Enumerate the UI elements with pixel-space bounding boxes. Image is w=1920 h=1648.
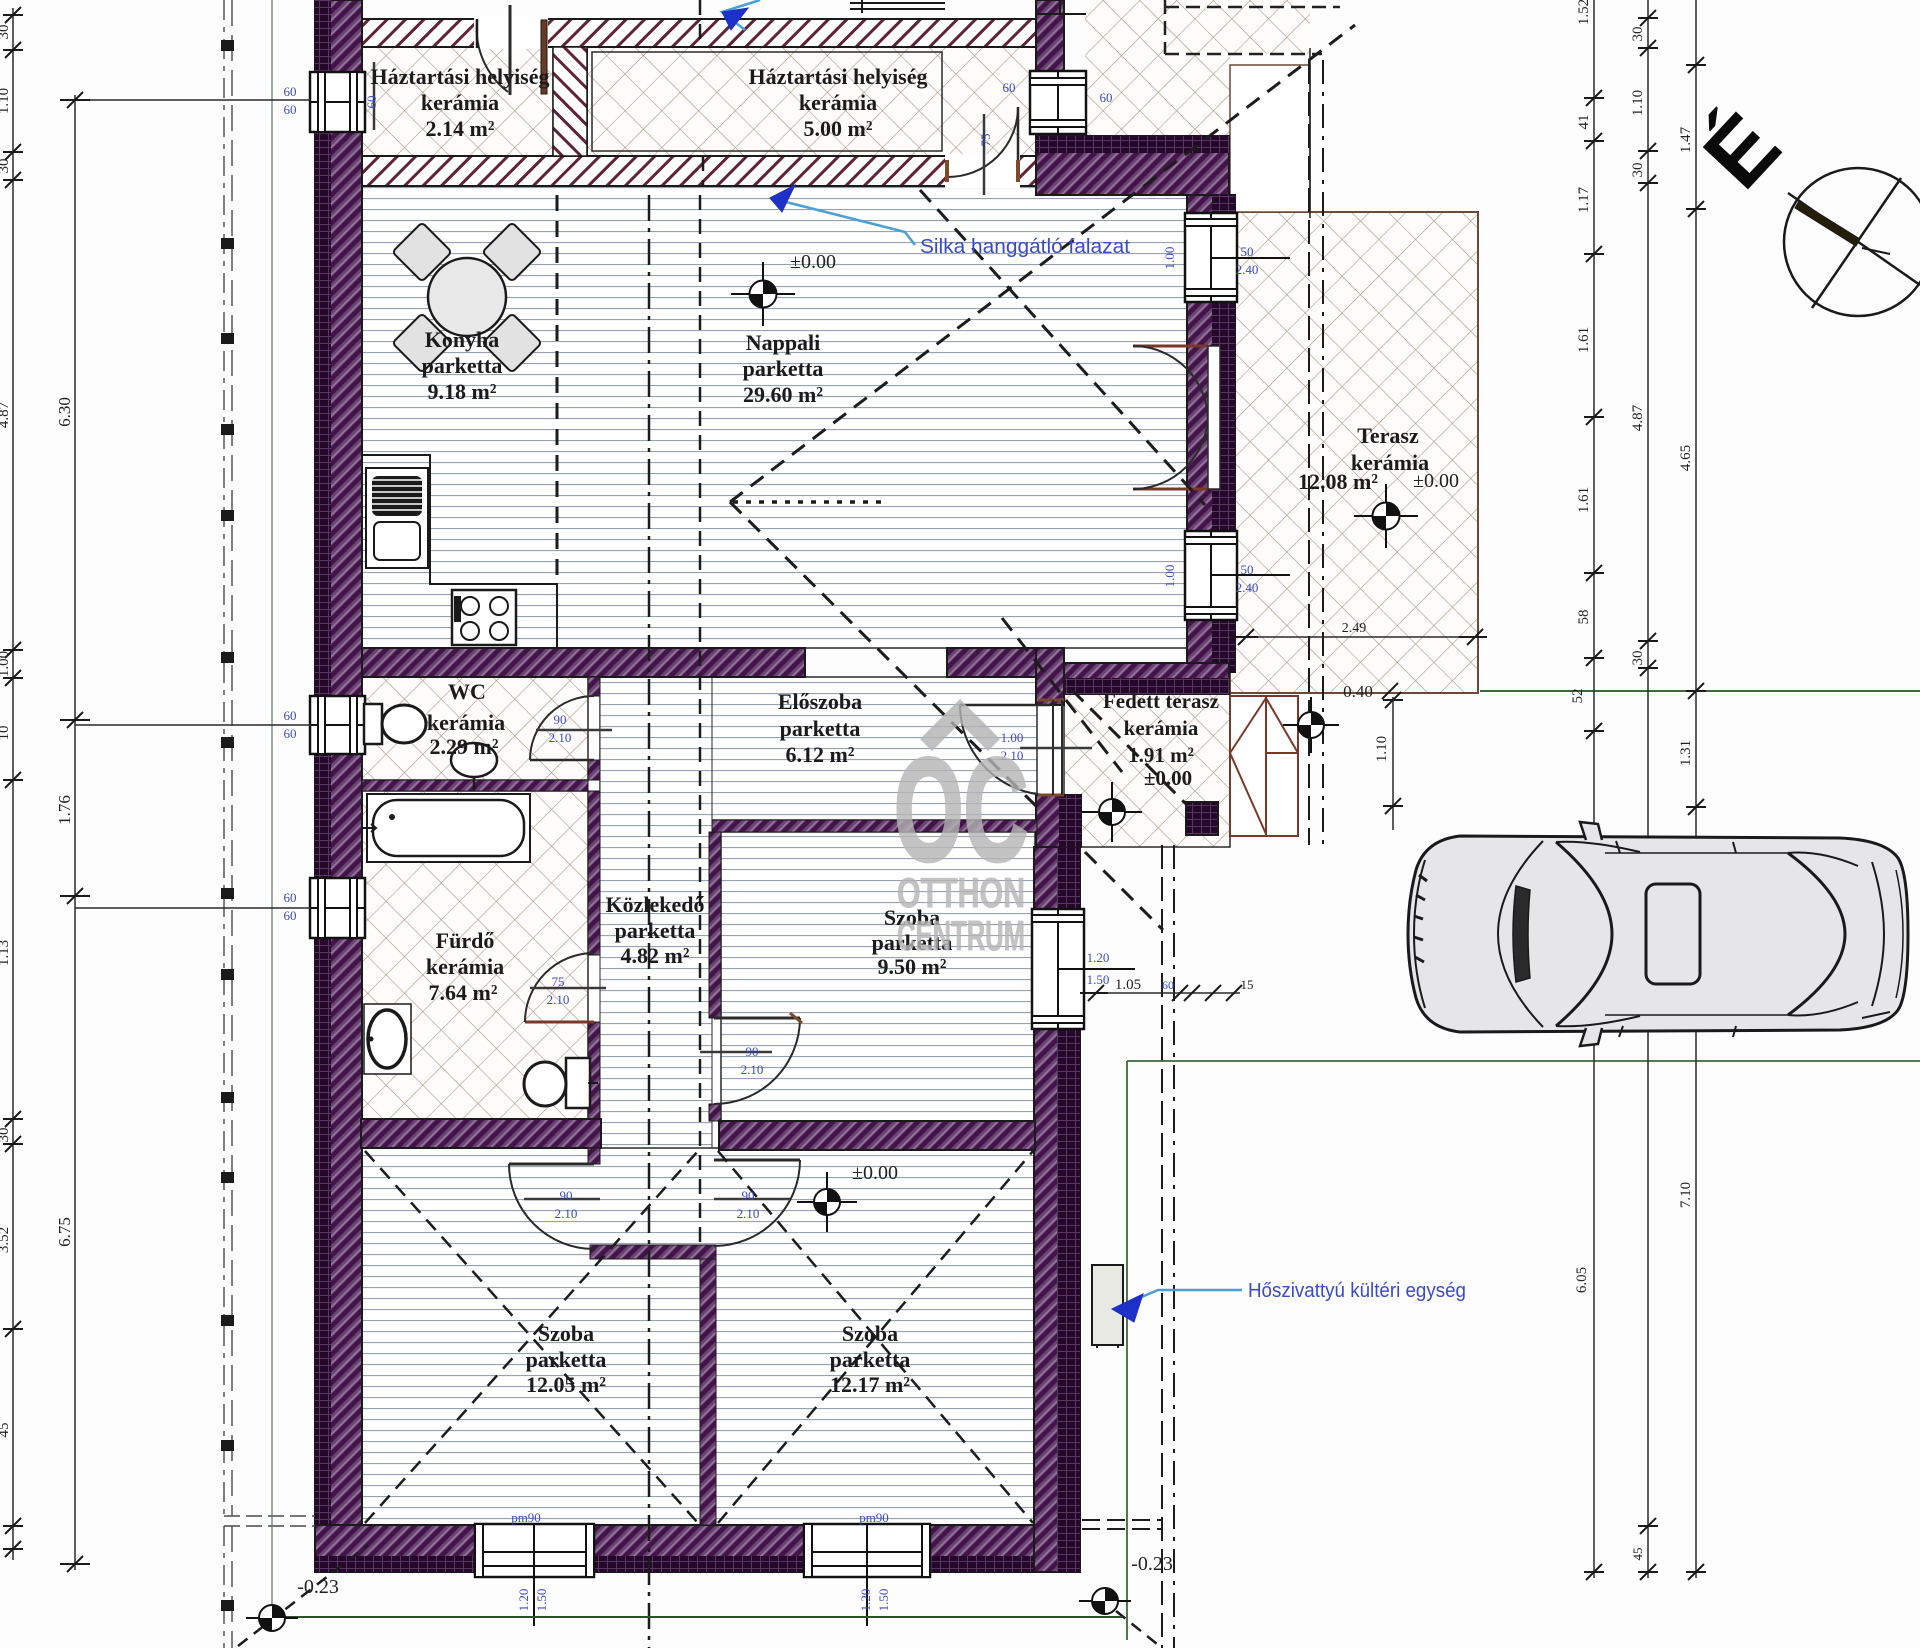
svg-text:2.14 m²: 2.14 m² xyxy=(426,116,495,141)
svg-text:10: 10 xyxy=(0,726,12,741)
svg-text:15: 15 xyxy=(1241,977,1254,992)
svg-text:parketta: parketta xyxy=(780,716,861,741)
svg-text:kerámia: kerámia xyxy=(427,710,505,735)
svg-text:60: 60 xyxy=(284,102,297,117)
svg-text:2.10: 2.10 xyxy=(741,1062,764,1077)
svg-text:Szoba: Szoba xyxy=(538,1321,594,1346)
svg-text:Nappali: Nappali xyxy=(746,330,821,355)
svg-text:1.50: 1.50 xyxy=(876,1589,891,1612)
svg-text:Fedett terasz: Fedett terasz xyxy=(1103,689,1219,713)
svg-text:±0.00: ±0.00 xyxy=(790,251,836,273)
svg-text:kerámia: kerámia xyxy=(799,90,877,115)
svg-text:2.49: 2.49 xyxy=(1342,621,1367,636)
svg-text:Silka hanggátló falazat: Silka hanggátló falazat xyxy=(920,236,1130,258)
svg-text:2.10: 2.10 xyxy=(737,1206,760,1221)
svg-text:Konyha: Konyha xyxy=(425,327,500,352)
svg-text:4.87: 4.87 xyxy=(0,401,12,428)
svg-text:1.20: 1.20 xyxy=(516,1589,531,1612)
svg-text:kerámia: kerámia xyxy=(426,954,504,979)
svg-text:1.50: 1.50 xyxy=(1087,972,1110,987)
svg-text:30: 30 xyxy=(0,1128,12,1143)
svg-text:-0.23: -0.23 xyxy=(297,1576,339,1598)
svg-text:45: 45 xyxy=(0,1423,12,1438)
svg-text:1.61: 1.61 xyxy=(1576,327,1592,353)
svg-text:parketta: parketta xyxy=(615,918,696,943)
svg-text:OTTHON: OTTHON xyxy=(897,869,1025,916)
svg-text:1.17: 1.17 xyxy=(1576,186,1592,213)
svg-text:90: 90 xyxy=(554,712,567,727)
svg-text:75: 75 xyxy=(978,134,993,147)
svg-text:pm90: pm90 xyxy=(859,1510,889,1525)
svg-text:60: 60 xyxy=(1100,90,1113,105)
svg-text:4.82 m²: 4.82 m² xyxy=(621,943,690,968)
svg-text:parketta: parketta xyxy=(743,356,824,381)
svg-text:-0.23: -0.23 xyxy=(1131,1553,1173,1575)
svg-text:2.40: 2.40 xyxy=(1236,262,1259,277)
svg-text:60: 60 xyxy=(284,708,297,723)
svg-text:2.10: 2.10 xyxy=(555,1206,578,1221)
svg-text:1.52: 1.52 xyxy=(1576,0,1592,25)
svg-text:12.17 m²: 12.17 m² xyxy=(830,1372,910,1397)
svg-text:parketta: parketta xyxy=(830,1347,911,1372)
svg-text:75: 75 xyxy=(552,974,565,989)
svg-text:3.52: 3.52 xyxy=(0,1227,12,1253)
svg-text:kerámia: kerámia xyxy=(421,90,499,115)
svg-text:1.00: 1.00 xyxy=(1162,565,1177,588)
svg-text:2.10: 2.10 xyxy=(547,992,570,1007)
svg-text:6.12 m²: 6.12 m² xyxy=(786,742,855,767)
svg-text:1.20: 1.20 xyxy=(858,1589,873,1612)
svg-text:2.40: 2.40 xyxy=(1236,580,1259,595)
svg-text:Előszoba: Előszoba xyxy=(778,689,862,714)
svg-text:OC: OC xyxy=(894,728,1028,891)
svg-text:1.91 m²: 1.91 m² xyxy=(1128,743,1194,767)
svg-text:parketta: parketta xyxy=(526,1347,607,1372)
svg-text:CENTRUM: CENTRUM xyxy=(897,912,1025,959)
svg-text:pm90: pm90 xyxy=(511,1510,541,1525)
svg-text:60: 60 xyxy=(284,726,297,741)
svg-text:Háztartási helyiség: Háztartási helyiség xyxy=(370,64,549,89)
svg-text:60: 60 xyxy=(1003,80,1016,95)
svg-text:90: 90 xyxy=(742,1188,755,1203)
svg-text:2.10: 2.10 xyxy=(549,730,572,745)
svg-text:30: 30 xyxy=(1630,651,1646,666)
svg-text:60: 60 xyxy=(284,84,297,99)
svg-text:1.61: 1.61 xyxy=(1576,487,1592,513)
svg-text:4.65: 4.65 xyxy=(1678,445,1694,471)
svg-text:30: 30 xyxy=(1630,163,1646,178)
svg-text:5.00 m²: 5.00 m² xyxy=(804,116,873,141)
svg-text:60: 60 xyxy=(1162,978,1174,992)
svg-text:50: 50 xyxy=(1241,562,1254,577)
svg-text:90: 90 xyxy=(560,1188,573,1203)
svg-text:12.05 m²: 12.05 m² xyxy=(526,1372,606,1397)
svg-text:6.30: 6.30 xyxy=(55,397,74,427)
svg-text:1.05: 1.05 xyxy=(1115,977,1141,993)
svg-text:30: 30 xyxy=(0,159,12,174)
svg-text:parketta: parketta xyxy=(422,353,503,378)
svg-text:60: 60 xyxy=(284,890,297,905)
svg-text:1.10: 1.10 xyxy=(1630,90,1646,116)
svg-text:1.76: 1.76 xyxy=(55,795,74,825)
svg-text:6.05: 6.05 xyxy=(1574,1267,1590,1293)
svg-text:60: 60 xyxy=(284,908,297,923)
svg-text:1.10: 1.10 xyxy=(1374,736,1390,762)
svg-text:1.00: 1.00 xyxy=(0,651,12,677)
svg-text:4.87: 4.87 xyxy=(1630,404,1646,431)
svg-text:41: 41 xyxy=(1576,115,1592,130)
svg-text:6.75: 6.75 xyxy=(55,1217,74,1247)
svg-text:Terasz: Terasz xyxy=(1357,423,1419,448)
svg-text:kerámia: kerámia xyxy=(1124,716,1199,740)
svg-text:Szoba: Szoba xyxy=(842,1321,898,1346)
svg-text:45: 45 xyxy=(1630,1548,1645,1561)
svg-text:Háztartási helyiség: Háztartási helyiség xyxy=(748,64,927,89)
svg-text:2.29 m²: 2.29 m² xyxy=(430,734,499,759)
svg-text:30: 30 xyxy=(0,25,12,40)
svg-text:58: 58 xyxy=(1576,610,1592,625)
svg-text:±0.00: ±0.00 xyxy=(852,1162,898,1184)
svg-text:0.40: 0.40 xyxy=(1343,682,1373,701)
svg-text:Hőszivattyú kültéri egység: Hőszivattyú kültéri egység xyxy=(1248,1280,1466,1302)
svg-text:12.08 m²: 12.08 m² xyxy=(1298,469,1378,494)
svg-text:Közlekedő: Közlekedő xyxy=(606,892,705,917)
svg-text:1.00: 1.00 xyxy=(1162,247,1177,270)
svg-text:1.31: 1.31 xyxy=(1678,740,1694,766)
svg-text:±0.00: ±0.00 xyxy=(1413,470,1459,492)
svg-text:1.50: 1.50 xyxy=(534,1589,549,1612)
svg-text:7.10: 7.10 xyxy=(1678,1182,1694,1208)
svg-text:1.10: 1.10 xyxy=(0,88,12,114)
svg-text:29.60 m²: 29.60 m² xyxy=(743,382,823,407)
svg-text:50: 50 xyxy=(1241,244,1254,259)
svg-text:7.64 m²: 7.64 m² xyxy=(429,980,498,1005)
svg-text:±0.00: ±0.00 xyxy=(1144,766,1192,790)
svg-text:1.13: 1.13 xyxy=(0,940,12,966)
svg-text:Fürdő: Fürdő xyxy=(436,928,495,953)
svg-text:1.20: 1.20 xyxy=(1087,950,1110,965)
svg-text:WC: WC xyxy=(448,679,486,704)
svg-text:60: 60 xyxy=(364,96,379,109)
svg-text:9.18 m²: 9.18 m² xyxy=(428,379,497,404)
svg-text:52: 52 xyxy=(1570,689,1586,704)
svg-text:90: 90 xyxy=(746,1044,759,1059)
svg-text:30: 30 xyxy=(1630,27,1646,42)
